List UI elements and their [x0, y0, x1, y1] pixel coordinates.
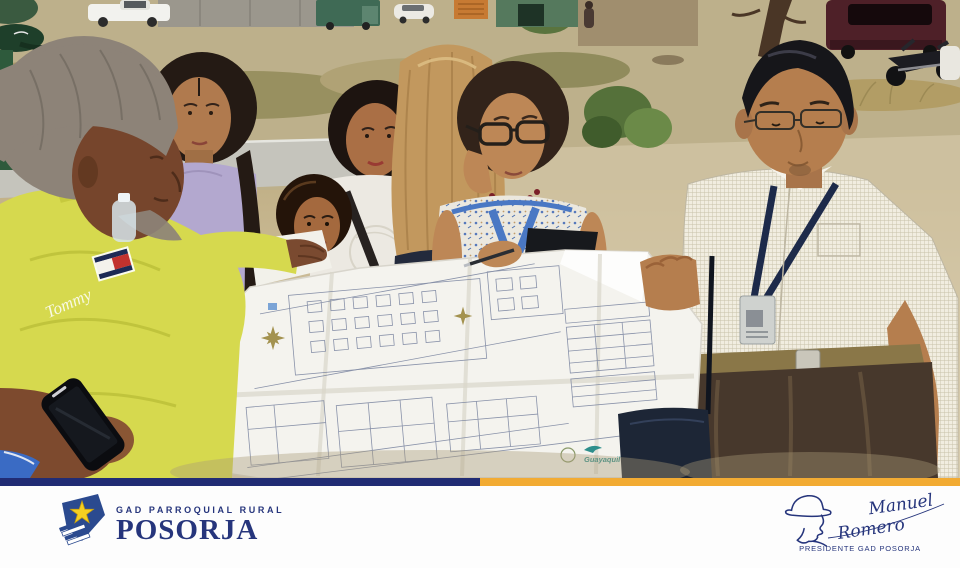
president-hand: [640, 254, 700, 310]
posorja-logo: GAD PARROQUIAL RURAL POSORJA: [52, 491, 284, 549]
photo-community-map-review: Guayaquil: [0, 0, 960, 478]
posorja-shield-icon: [52, 491, 108, 549]
president-signature-block: Manuel Romero PRESIDENTE GAD POSORJA: [770, 486, 955, 568]
distant-person: [584, 1, 594, 28]
posorja-wordmark: POSORJA: [116, 515, 284, 545]
signature-manuel-romero: Manuel Romero: [822, 492, 952, 544]
footer-accent-bar: [0, 478, 960, 486]
orange-truck: [454, 0, 488, 19]
green-truck: [316, 0, 380, 30]
image-frame: Guayaquil: [0, 0, 960, 568]
white-car-edge: [940, 46, 960, 80]
footer-banner: GAD PARROQUIAL RURAL POSORJA Manuel Rome…: [0, 486, 960, 568]
president-title: PRESIDENTE GAD POSORJA: [770, 544, 950, 553]
green-building: [496, 0, 578, 27]
